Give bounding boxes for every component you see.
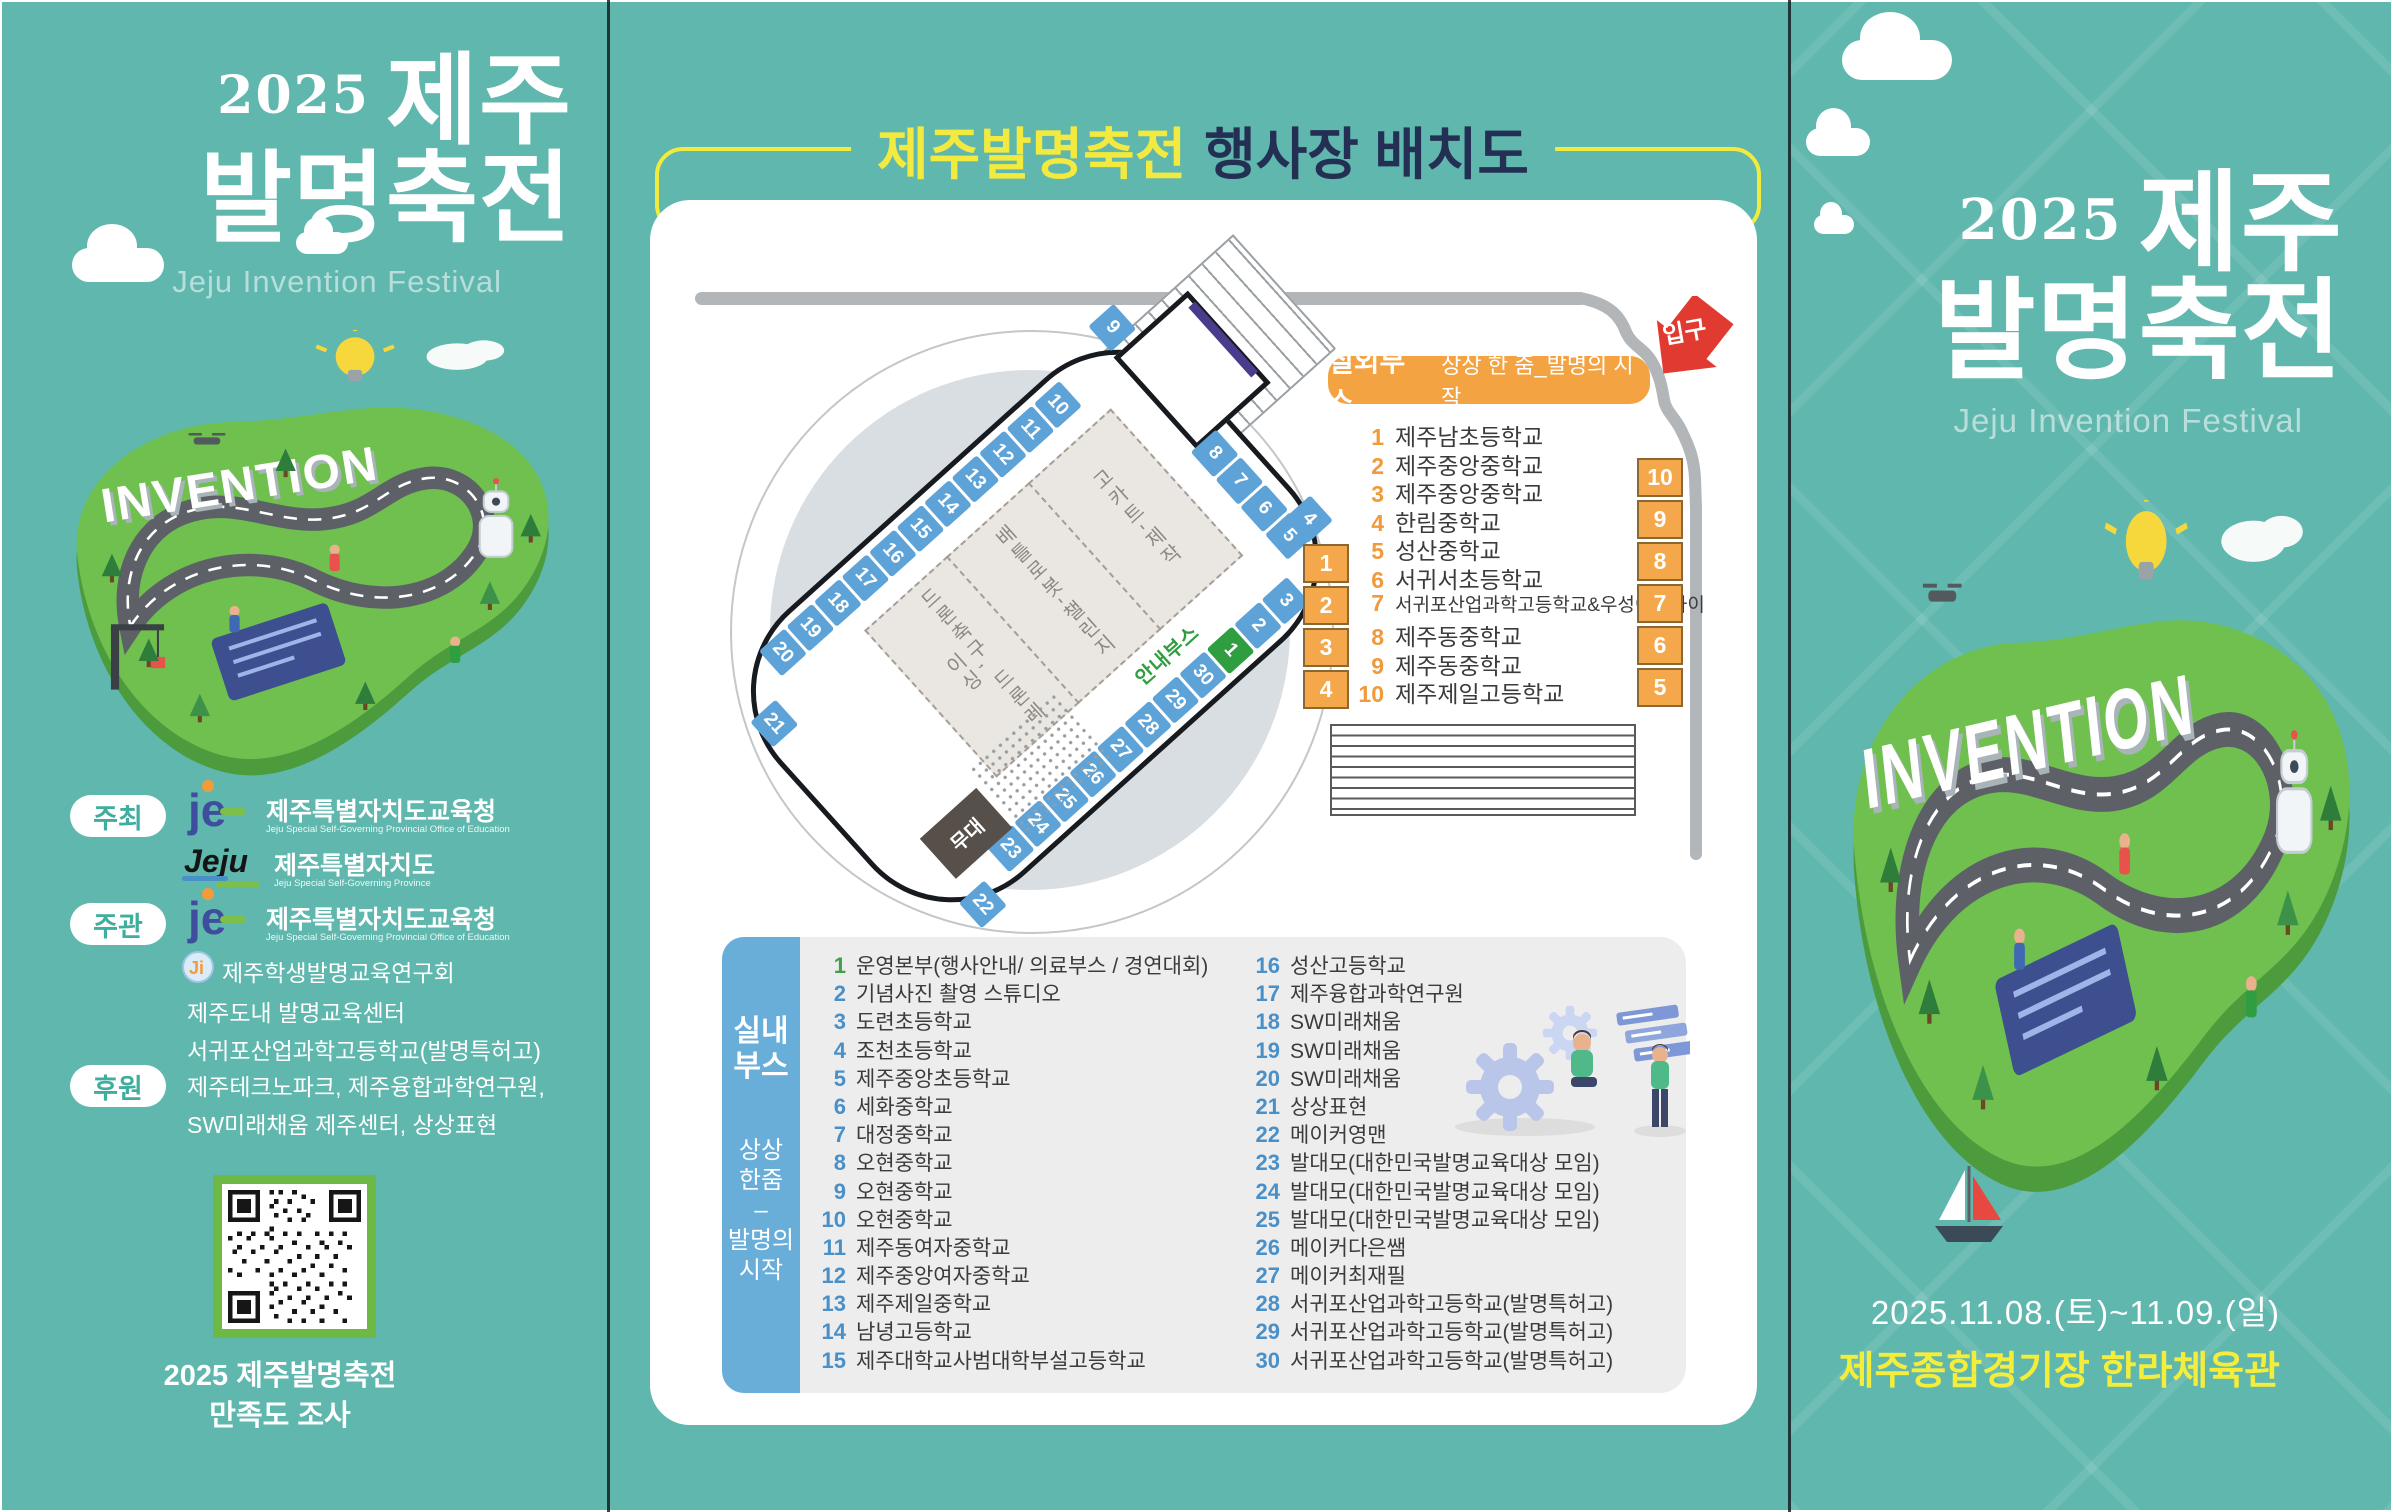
indoor-item-number: 2 (806, 981, 846, 1007)
indoor-list-item: 5 제주중앙초등학교 (806, 1063, 1208, 1091)
indoor-item-name: 발대모(대한민국발명교육대상 모임) (1290, 1147, 1600, 1177)
indoor-item-number: 10 (806, 1207, 846, 1233)
indoor-item-name: 발대모(대한민국발명교육대상 모임) (1290, 1204, 1600, 1234)
title-line1: 제주 (2139, 162, 2343, 285)
outdoor-booth-box: 5 (1637, 668, 1683, 707)
host-org1-eng: Jeju Special Self-Governing Provincial O… (266, 824, 510, 835)
fold-line (607, 0, 610, 1512)
indoor-item-number: 30 (1240, 1348, 1280, 1374)
indoor-list-item: 14 남녕고등학교 (806, 1316, 1208, 1344)
brochure-canvas: 2025제주 발명축전 Jeju Invention Festival INVE… (0, 0, 2393, 1512)
indoor-item-name: 제주동여자중학교 (856, 1232, 1011, 1262)
indoor-item-name: 제주대학교사범대학부설고등학교 (856, 1345, 1146, 1375)
lightbulb-icon (2105, 500, 2187, 579)
page-title-highlight: 제주발명축전 (877, 123, 1186, 186)
organizer-extra-line: 제주도내 발명교육센터 (187, 994, 405, 1028)
indoor-item-number: 18 (1240, 1009, 1280, 1035)
indoor-item-name: 발대모(대한민국발명교육대상 모임) (1290, 1176, 1600, 1206)
outdoor-item-number: 3 (1336, 481, 1384, 508)
year-text: 2025 (1959, 187, 2123, 253)
indoor-item-number: 5 (806, 1066, 846, 1092)
island-illustration: INVENTION INVENTION (1792, 500, 2393, 1230)
indoor-item-name: 오현중학교 (856, 1176, 953, 1206)
grandstand (1330, 724, 1636, 816)
island-illustration: INVENTION INVENTION (18, 330, 590, 800)
cloud-icon (1842, 40, 1952, 80)
indoor-item-number: 13 (806, 1291, 846, 1317)
indoor-item-name: 메이커영맨 (1290, 1119, 1387, 1149)
indoor-list-item: 7 대정중학교 (806, 1119, 1208, 1147)
cloud-icon (1806, 128, 1870, 156)
svg-text:Jeju: Jeju (184, 843, 248, 879)
organizer-org1-name: 제주특별자치도교육청 (266, 900, 496, 936)
indoor-list-item: 29 서귀포산업과학고등학교(발명특허고) (1240, 1316, 1613, 1344)
indoor-sidebar-slogan: 상상 한줌 – 발명의 시작 (728, 1136, 794, 1286)
indoor-item-name: 남녕고등학교 (856, 1316, 972, 1346)
host-org1-name: 제주특별자치도교육청 (266, 792, 496, 828)
indoor-item-number: 19 (1240, 1038, 1280, 1064)
indoor-item-number: 8 (806, 1150, 846, 1176)
indoor-item-number: 21 (1240, 1094, 1280, 1120)
drone-icon (1923, 586, 1962, 602)
indoor-list-item: 30 서귀포산업과학고등학교(발명특허고) (1240, 1345, 1613, 1373)
outdoor-list-item: 1 제주남초등학교 (1336, 418, 1705, 447)
organizer-extra-line: 서귀포산업과학고등학교(발명특허고) (187, 1032, 541, 1066)
indoor-list-item: 9 오현중학교 (806, 1176, 1208, 1204)
indoor-list-item: 4 조천초등학교 (806, 1035, 1208, 1063)
page-title-rest: 행사장 배치도 (1204, 123, 1529, 186)
host-pill: 주최 (70, 795, 166, 837)
indoor-item-name: 세화중학교 (856, 1091, 953, 1121)
panel-left: 2025제주 발명축전 Jeju Invention Festival INVE… (0, 0, 608, 1512)
indoor-item-name: 오현중학교 (856, 1147, 953, 1177)
indoor-list-item: 27 메이커최재필 (1240, 1260, 1613, 1288)
outdoor-booth-box: 4 (1303, 670, 1349, 709)
indoor-item-name: SW미래채움 (1290, 1006, 1401, 1036)
indoor-list-col1: 1 운영본부(행사안내/ 의료부스 / 경연대회) 2 기념사진 촬영 스튜디오… (806, 950, 1208, 1373)
indoor-list-item: 15 제주대학교사범대학부설고등학교 (806, 1345, 1208, 1373)
organizer-org1-eng: Jeju Special Self-Governing Provincial O… (266, 932, 510, 943)
indoor-item-number: 11 (806, 1235, 846, 1261)
indoor-item-name: 제주중앙여자중학교 (856, 1260, 1030, 1290)
indoor-item-name: SW미래채움 (1290, 1063, 1401, 1093)
title-line2: 발명축전 (1934, 278, 2343, 386)
fold-line (1788, 0, 1791, 1512)
indoor-item-name: 대정중학교 (856, 1119, 953, 1149)
gears-illustration (1430, 975, 1690, 1145)
title-line2: 발명축전 (0, 150, 572, 248)
indoor-item-name: 제주중앙초등학교 (856, 1063, 1011, 1093)
indoor-list-item: 23 발대모(대한민국발명교육대상 모임) (1240, 1147, 1613, 1175)
venue-line: 제주종합경기장 한라체육관 (1839, 1340, 2280, 1396)
qr-code (213, 1175, 376, 1338)
je-logo: je (180, 886, 256, 944)
outdoor-title: 실외부스 (1328, 340, 1429, 420)
indoor-item-number: 7 (806, 1122, 846, 1148)
indoor-list-item: 10 오현중학교 (806, 1204, 1208, 1232)
indoor-item-number: 23 (1240, 1150, 1280, 1176)
indoor-item-name: 성산고등학교 (1290, 950, 1406, 980)
indoor-list-item: 3 도련초등학교 (806, 1006, 1208, 1034)
indoor-item-name: SW미래채움 (1290, 1035, 1401, 1065)
svg-text:Ji: Ji (189, 958, 204, 978)
host-org2-name: 제주특별자치도 (274, 846, 435, 882)
outdoor-item-name: 제주제일고등학교 (1395, 675, 1564, 709)
outdoor-boxes-left: 1234 (1303, 544, 1349, 709)
indoor-list-item: 2 기념사진 촬영 스튜디오 (806, 978, 1208, 1006)
outdoor-booth-box: 2 (1303, 586, 1349, 625)
indoor-item-name: 메이커다은쌤 (1290, 1232, 1406, 1262)
venue-wall-top (695, 292, 1587, 305)
outdoor-booth-box: 7 (1637, 584, 1683, 623)
outdoor-booth-box: 10 (1637, 458, 1683, 497)
outdoor-item-number: 4 (1336, 510, 1384, 537)
indoor-item-name: 상상표현 (1290, 1091, 1367, 1121)
outdoor-boxes-right: 1098765 (1637, 458, 1683, 707)
outdoor-booth-box: 9 (1637, 500, 1683, 539)
indoor-item-number: 4 (806, 1038, 846, 1064)
indoor-item-number: 29 (1240, 1319, 1280, 1345)
indoor-list-item: 28 서귀포산업과학고등학교(발명특허고) (1240, 1288, 1613, 1316)
indoor-item-number: 15 (806, 1348, 846, 1374)
host-org2-eng: Jeju Special Self-Governing Province (274, 878, 431, 889)
qr-caption-line1: 2025 제주발명축전 (100, 1352, 460, 1394)
outdoor-subtitle: 상상 한 줌_발명의 시작 (1441, 348, 1650, 412)
indoor-list-item: 16 성산고등학교 (1240, 950, 1613, 978)
indoor-item-number: 16 (1240, 953, 1280, 979)
indoor-list-item: 1 운영본부(행사안내/ 의료부스 / 경연대회) (806, 950, 1208, 978)
indoor-list-item: 11 제주동여자중학교 (806, 1232, 1208, 1260)
indoor-item-name: 서귀포산업과학고등학교(발명특허고) (1290, 1288, 1613, 1318)
sponsor-line: 제주테크노파크, 제주융합과학연구원, (187, 1068, 545, 1102)
sponsor-pill: 후원 (70, 1065, 166, 1107)
indoor-item-name: 오현중학교 (856, 1204, 953, 1234)
date-line: 2025.11.08.(토)~11.09.(일) (1839, 1286, 2280, 1334)
indoor-list-item: 12 제주중앙여자중학교 (806, 1260, 1208, 1288)
indoor-item-name: 제주제일중학교 (856, 1288, 991, 1318)
indoor-item-number: 20 (1240, 1066, 1280, 1092)
left-title: 2025제주 발명축전 Jeju Invention Festival (0, 52, 572, 300)
ji-logo: Ji (182, 951, 214, 983)
indoor-item-number: 6 (806, 1094, 846, 1120)
indoor-item-number: 14 (806, 1319, 846, 1345)
subtitle: Jeju Invention Festival (0, 264, 572, 300)
indoor-item-number: 25 (1240, 1207, 1280, 1233)
indoor-item-name: 서귀포산업과학고등학교(발명특허고) (1290, 1316, 1613, 1346)
indoor-list-item: 13 제주제일중학교 (806, 1288, 1208, 1316)
year-text: 2025 (217, 65, 370, 126)
outdoor-booth-box: 3 (1303, 628, 1349, 667)
indoor-list-item: 8 오현중학교 (806, 1147, 1208, 1175)
title-line1: 제주 (386, 45, 572, 157)
outdoor-item-number: 1 (1336, 424, 1384, 451)
subtitle: Jeju Invention Festival (1934, 402, 2343, 440)
indoor-item-number: 26 (1240, 1235, 1280, 1261)
organizer-extra-line: 제주학생발명교육연구회 (222, 954, 455, 988)
indoor-item-name: 서귀포산업과학고등학교(발명특허고) (1290, 1345, 1613, 1375)
person-figure (1651, 1044, 1669, 1127)
sponsor-line: SW미래채움 제주센터, 상상표현 (187, 1106, 497, 1140)
indoor-item-number: 17 (1240, 981, 1280, 1007)
indoor-item-number: 27 (1240, 1263, 1280, 1289)
indoor-item-number: 22 (1240, 1122, 1280, 1148)
indoor-sidebar-title: 실내 부스 (733, 1015, 788, 1084)
indoor-list-item: 24 발대모(대한민국발명교육대상 모임) (1240, 1176, 1613, 1204)
indoor-item-number: 12 (806, 1263, 846, 1289)
organizer-pill: 주관 (70, 903, 166, 945)
person-figure (1571, 1030, 1597, 1087)
sailboat-icon (1925, 1160, 2015, 1255)
outdoor-booth-box: 1 (1303, 544, 1349, 583)
lightbulb-icon (316, 330, 394, 381)
outdoor-item-number: 2 (1336, 453, 1384, 480)
right-title: 2025제주 발명축전 Jeju Invention Festival (1934, 170, 2343, 440)
jeju-logo: Jeju (180, 842, 266, 888)
indoor-sidebar: 실내 부스 상상 한줌 – 발명의 시작 (722, 937, 800, 1393)
indoor-item-name: 기념사진 촬영 스튜디오 (856, 978, 1061, 1008)
page-title: 제주발명축전행사장 배치도 (851, 110, 1555, 191)
indoor-item-number: 24 (1240, 1179, 1280, 1205)
outdoor-booth-box: 8 (1637, 542, 1683, 581)
indoor-item-number: 1 (806, 953, 846, 979)
indoor-item-number: 9 (806, 1179, 846, 1205)
indoor-item-number: 3 (806, 1009, 846, 1035)
indoor-item-name: 조천초등학교 (856, 1035, 972, 1065)
indoor-list-item: 26 메이커다은쌤 (1240, 1232, 1613, 1260)
indoor-item-name: 메이커최재필 (1290, 1260, 1406, 1290)
indoor-item-name: 운영본부(행사안내/ 의료부스 / 경연대회) (856, 950, 1208, 980)
indoor-list-item: 6 세화중학교 (806, 1091, 1208, 1119)
cloud-icon (1814, 215, 1854, 234)
qr-caption-line2: 만족도 조사 (100, 1392, 460, 1434)
indoor-item-name: 도련초등학교 (856, 1006, 972, 1036)
outdoor-booth-box: 6 (1637, 626, 1683, 665)
je-logo: je (180, 778, 256, 836)
event-dates: 2025.11.08.(토)~11.09.(일) 제주종합경기장 한라체육관 (1839, 1286, 2280, 1396)
outdoor-header: 실외부스 상상 한 줌_발명의 시작 (1328, 356, 1650, 404)
indoor-list-item: 25 발대모(대한민국발명교육대상 모임) (1240, 1204, 1613, 1232)
gear-icon (1466, 1043, 1554, 1131)
indoor-item-number: 28 (1240, 1291, 1280, 1317)
